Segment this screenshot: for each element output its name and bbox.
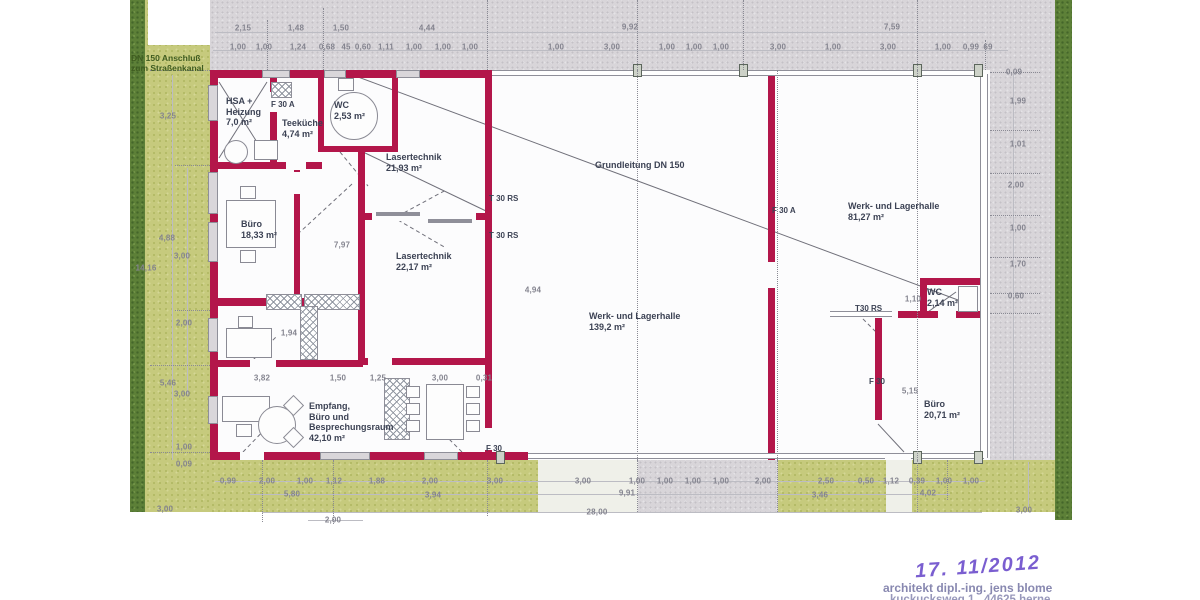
room-label: Büro 20,71 m² <box>924 399 960 420</box>
dimension-label: 0,60 <box>1008 292 1024 301</box>
reference-line <box>917 70 918 460</box>
dimension-label: 1,00 <box>1010 224 1026 233</box>
dimension-label: 4,88 <box>159 234 175 243</box>
window <box>424 452 458 460</box>
dimension-label: 1,00 <box>963 477 979 486</box>
dimension-label: 7,59 <box>884 23 900 32</box>
door-opening <box>240 452 264 460</box>
furniture <box>226 328 272 358</box>
wall-segment <box>485 70 492 452</box>
dimension-label: 1,00 <box>659 43 675 52</box>
dimension-label: 1,00 <box>935 43 951 52</box>
dimension-label: 2,00 <box>176 319 192 328</box>
door-label: T 30 RS <box>489 194 518 203</box>
furniture <box>466 420 480 432</box>
dimension-label: 0,68 <box>319 43 335 52</box>
reference-line <box>777 460 778 512</box>
dimension-label: 69 <box>983 43 992 52</box>
furniture <box>240 250 256 263</box>
hatched-shaft <box>300 306 318 360</box>
dimension-label: 1,00 <box>825 43 841 52</box>
dimension-label: 1,00 <box>713 43 729 52</box>
dimension-label: 1,00 <box>629 477 645 486</box>
window <box>208 318 218 352</box>
light-wall <box>980 74 988 458</box>
reference-line <box>150 365 210 366</box>
dimension-label: 3,00 <box>487 477 503 486</box>
dimension-label: 0,09 <box>176 460 192 469</box>
door-label: F 30 A <box>271 100 295 109</box>
dimension-label: 5,80 <box>284 490 300 499</box>
wall-segment <box>458 452 528 460</box>
dimension-label: 2,15 <box>235 24 251 33</box>
dimension-label: 1,12 <box>326 477 342 486</box>
reference-line <box>175 310 210 311</box>
door-opening <box>938 311 956 318</box>
wall-segment <box>358 150 365 365</box>
dimension-label: 1,50 <box>333 24 349 33</box>
reference-line <box>637 460 638 512</box>
stamp-architect-line: architekt dipl.-ing. jens blome <box>883 581 1052 595</box>
window <box>262 70 290 78</box>
dimension-label: 1,99 <box>1010 97 1026 106</box>
room-label: Grundleitung DN 150 <box>595 160 685 171</box>
dimension-label: 1,94 <box>281 329 297 338</box>
furniture <box>236 424 252 437</box>
dimension-line <box>215 32 985 33</box>
room-label: Werk- und Lagerhalle 81,27 m² <box>848 201 939 222</box>
dimension-label: 1,00 <box>548 43 564 52</box>
dimension-label: 1,01 <box>1010 140 1026 149</box>
furniture <box>466 403 480 415</box>
dimension-label: 5,15 <box>902 387 918 396</box>
room-label: Büro 18,33 m² <box>241 219 277 240</box>
dimension-label: 3,00 <box>432 374 448 383</box>
wall-segment <box>875 318 882 420</box>
light-wall <box>492 70 982 76</box>
wall-segment <box>318 70 324 152</box>
wall-segment <box>264 452 322 460</box>
dimension-label: 1,50 <box>330 374 346 383</box>
dimension-label: 0,09 <box>1006 68 1022 77</box>
wall-segment <box>212 360 363 367</box>
reference-line <box>637 0 638 70</box>
dimension-label: 1,00 <box>713 477 729 486</box>
sliding-door <box>376 212 420 216</box>
reference-line <box>637 70 638 460</box>
dimension-line <box>172 75 173 460</box>
door-swing-line <box>398 220 446 248</box>
wall-segment <box>210 70 264 78</box>
stamp-address-line: kuckucksweg 1 . 44625 herne <box>890 594 1050 600</box>
door-label: T30 RS <box>855 304 882 313</box>
dimension-label: 3,00 <box>770 43 786 52</box>
wall-segment <box>923 278 985 285</box>
sliding-door <box>428 219 472 223</box>
dimension-label: 0,60 <box>355 43 371 52</box>
dimension-label: 9,92 <box>622 23 638 32</box>
dimension-label: 2,50 <box>818 477 834 486</box>
dimension-label: 1,00 <box>256 43 272 52</box>
furniture <box>406 403 420 415</box>
window <box>320 452 370 460</box>
reference-line <box>487 460 488 516</box>
window <box>208 222 218 262</box>
dimension-label: 4,02 <box>920 489 936 498</box>
dimension-label: 45 <box>341 43 350 52</box>
reference-line <box>323 8 324 70</box>
reference-line <box>175 165 210 166</box>
furniture <box>406 420 420 432</box>
reference-line <box>990 215 1040 216</box>
furniture <box>338 78 354 91</box>
dimension-label: 1,11 <box>378 43 394 52</box>
window <box>208 172 218 214</box>
furniture <box>426 384 464 440</box>
dimension-line <box>262 512 982 513</box>
dimension-label: 2,00 <box>1008 181 1024 190</box>
dimension-label: 3,00 <box>1016 506 1032 515</box>
dimension-label: 0,39 <box>909 477 925 486</box>
dimension-label: 1,00 <box>435 43 451 52</box>
room-label: Werk- und Lagerhalle 139,2 m² <box>589 311 680 332</box>
reference-line <box>777 70 778 460</box>
column-post <box>974 64 983 77</box>
dimension-label: 1,25 <box>370 374 386 383</box>
furniture <box>240 186 256 199</box>
wall-segment <box>346 70 396 78</box>
door-opening <box>250 359 276 368</box>
dimension-label: 3,00 <box>174 390 190 399</box>
dimension-label: 0,99 <box>220 477 236 486</box>
dimension-label: 1,00 <box>230 43 246 52</box>
reference-line <box>150 452 210 453</box>
door-opening <box>368 357 392 366</box>
dimension-label: 3,00 <box>880 43 896 52</box>
reference-line <box>487 0 488 70</box>
dimension-label: 9,91 <box>619 489 635 498</box>
dimension-label: 3,00 <box>157 505 173 514</box>
reference-line <box>990 130 1040 131</box>
dimension-label: 1,12 <box>883 477 899 486</box>
dimension-label: 1,00 <box>685 477 701 486</box>
dimension-label: 2,00 <box>259 477 275 486</box>
dimension-label: 2,00 <box>755 477 771 486</box>
window <box>396 70 420 78</box>
furniture <box>406 386 420 398</box>
dimension-label: 3,00 <box>575 477 591 486</box>
door-label: T 30 RS <box>489 231 518 240</box>
dimension-label: 3,46 <box>812 491 828 500</box>
dimension-label: 3,94 <box>425 491 441 500</box>
dimension-label: 1,00 <box>176 443 192 452</box>
reference-line <box>743 0 744 70</box>
room-label: WC 2,53 m² <box>334 100 365 121</box>
door-label: F 30 <box>869 377 885 386</box>
dimension-label: 1,00 <box>297 477 313 486</box>
dimension-label: 4,44 <box>419 24 435 33</box>
dimension-label: 2,00 <box>422 477 438 486</box>
room-label: Empfang, Büro und Besprechungsraum 42,10… <box>309 401 394 443</box>
wall-segment <box>420 70 492 78</box>
dimension-label: 1,00 <box>686 43 702 52</box>
door-opening <box>885 454 911 459</box>
window <box>208 396 218 424</box>
door-opening <box>767 262 776 288</box>
dimension-label: 28,00 <box>586 508 607 517</box>
reference-line <box>990 313 1040 314</box>
dimension-line <box>187 168 188 394</box>
dimension-label: 1,88 <box>369 477 385 486</box>
dimension-label: 4,94 <box>525 286 541 295</box>
reference-line <box>333 460 334 524</box>
dimension-label: 3,82 <box>254 374 270 383</box>
dimension-label: 1,00 <box>936 477 952 486</box>
dimension-label: 7,97 <box>334 241 350 250</box>
dimension-label: 0,50 <box>858 477 874 486</box>
dimension-label: 1,00 <box>406 43 422 52</box>
dimension-label: 3,00 <box>174 252 190 261</box>
dimension-label: 5,46 <box>160 379 176 388</box>
dimension-line <box>1028 462 1029 512</box>
site-label: DN 150 Anschluß zum Straßenkanal <box>131 53 204 73</box>
dimension-label: 1,24 <box>290 43 306 52</box>
reference-line <box>990 173 1040 174</box>
furniture <box>958 286 978 312</box>
room-label: Lasertechnik 22,17 m² <box>396 251 452 272</box>
door-opening <box>286 160 306 170</box>
dimension-label: 1,00 <box>462 43 478 52</box>
dimension-label: 0,99 <box>963 43 979 52</box>
room-label: Teeküche 4,74 m² <box>282 118 323 139</box>
room-label: Lasertechnik 21,93 m² <box>386 152 442 173</box>
window <box>208 85 218 121</box>
room-label: WC 2,14 m² <box>927 287 958 308</box>
dimension-label: 1,10 <box>905 295 921 304</box>
dimension-line <box>250 494 950 495</box>
wall-segment <box>370 452 424 460</box>
door-label: F 30 A <box>772 206 796 215</box>
furniture <box>238 316 253 328</box>
door-opening <box>293 172 301 194</box>
hatched-shaft <box>271 82 292 98</box>
column-post <box>974 451 983 464</box>
window <box>324 70 346 78</box>
dimension-label: 14,16 <box>135 264 156 273</box>
floor-plan-canvas: 2,151,481,504,449,927,591,001,001,240,68… <box>0 0 1200 600</box>
furniture-round <box>224 140 248 164</box>
dimension-label: 3,00 <box>604 43 620 52</box>
reference-line <box>917 0 918 70</box>
reference-line <box>917 460 918 512</box>
door-label: F 30 <box>486 444 502 453</box>
dimension-label: 0,31 <box>476 374 492 383</box>
dimension-label: 1,00 <box>657 477 673 486</box>
dimension-label: 1,48 <box>288 24 304 33</box>
furniture <box>254 140 278 160</box>
wall-segment <box>210 452 242 460</box>
furniture <box>466 386 480 398</box>
door-swing-line <box>300 184 352 232</box>
dimension-label: 3,25 <box>160 112 176 121</box>
dimension-label: 1,70 <box>1010 260 1026 269</box>
room-label: HSA + Heizung 7,0 m² <box>226 96 261 128</box>
wall-segment <box>392 70 398 150</box>
hatched-shaft <box>266 294 302 310</box>
drain-line <box>878 424 904 452</box>
reference-line <box>262 460 263 522</box>
reference-line <box>990 257 1040 258</box>
dimension-label: 2,00 <box>325 516 341 525</box>
